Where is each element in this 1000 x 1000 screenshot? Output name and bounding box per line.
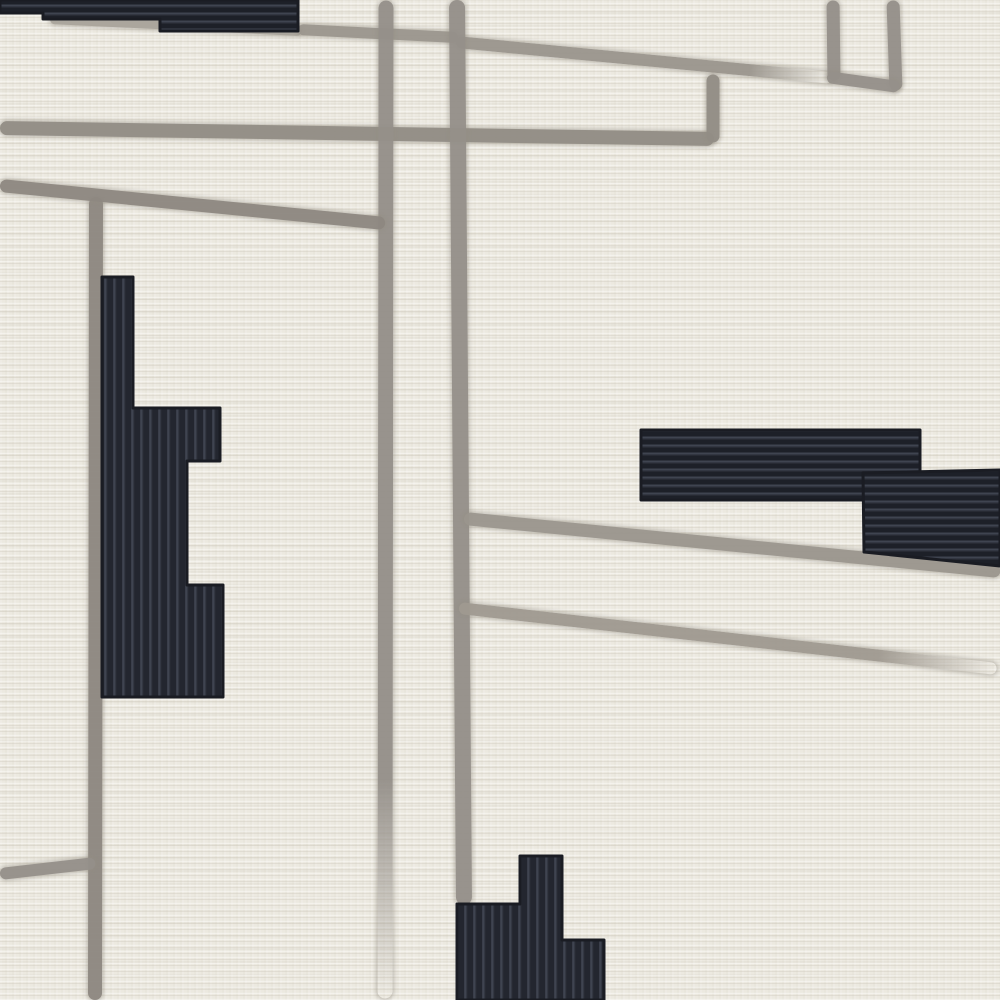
left-stepped-block [102, 277, 223, 697]
top-left-band [0, 0, 298, 31]
rug-photo [0, 0, 1000, 1000]
dark-blocks-layer [0, 0, 1000, 1000]
right-bar-lower [863, 470, 1000, 566]
bottom-stepped-block [457, 856, 604, 1000]
